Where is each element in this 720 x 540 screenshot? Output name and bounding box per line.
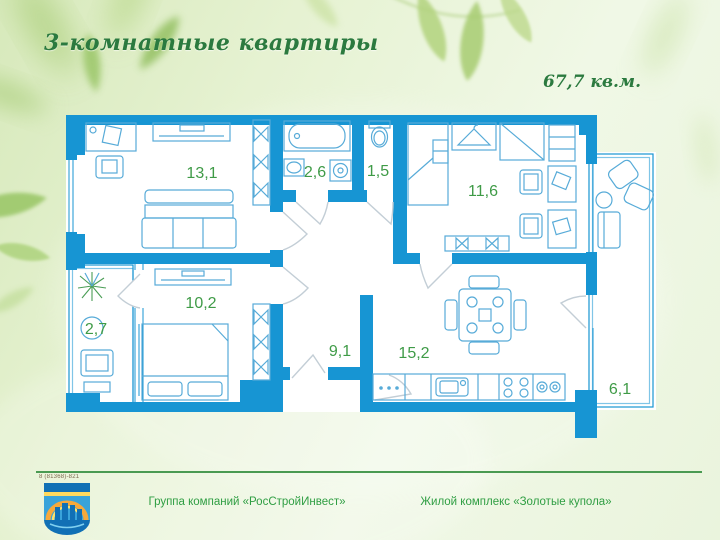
area-label-bedroom-right: 11,6 [468, 183, 498, 200]
area-label-hallway: 9,1 [329, 343, 351, 360]
area-label-balcony-left: 2,7 [85, 321, 107, 338]
area-label-kitchen: 15,2 [398, 345, 429, 362]
leaf-left-edge [0, 187, 52, 318]
footer-project-name: Жилой комплекс «Золотые купола» [406, 496, 626, 508]
balcony-right-body [588, 152, 656, 410]
total-area-label: 67,7 кв.м. [532, 72, 652, 92]
floor-plan: 13,1 2,6 1,5 11,6 2,7 10,2 9,1 15,2 6,1 [62, 112, 662, 447]
area-label-wc: 1,5 [367, 163, 389, 180]
logo-caption: 8 (81368)-821 [39, 474, 79, 480]
footer-company-name: Группа компаний «РосСтройИнвест» [127, 496, 367, 508]
area-label-bedroom-left: 10,2 [185, 295, 216, 312]
slide: 3-комнатные квартиры 67,7 кв.м. [0, 0, 720, 540]
company-logo [42, 483, 92, 535]
area-label-living-room: 13,1 [186, 165, 217, 182]
footer-divider [36, 471, 702, 473]
area-label-bathroom: 2,6 [304, 164, 326, 181]
leaf-cluster-top-left [0, 0, 186, 122]
page-title: 3-комнатные квартиры [44, 30, 379, 56]
area-label-balcony-right: 6,1 [609, 381, 631, 398]
